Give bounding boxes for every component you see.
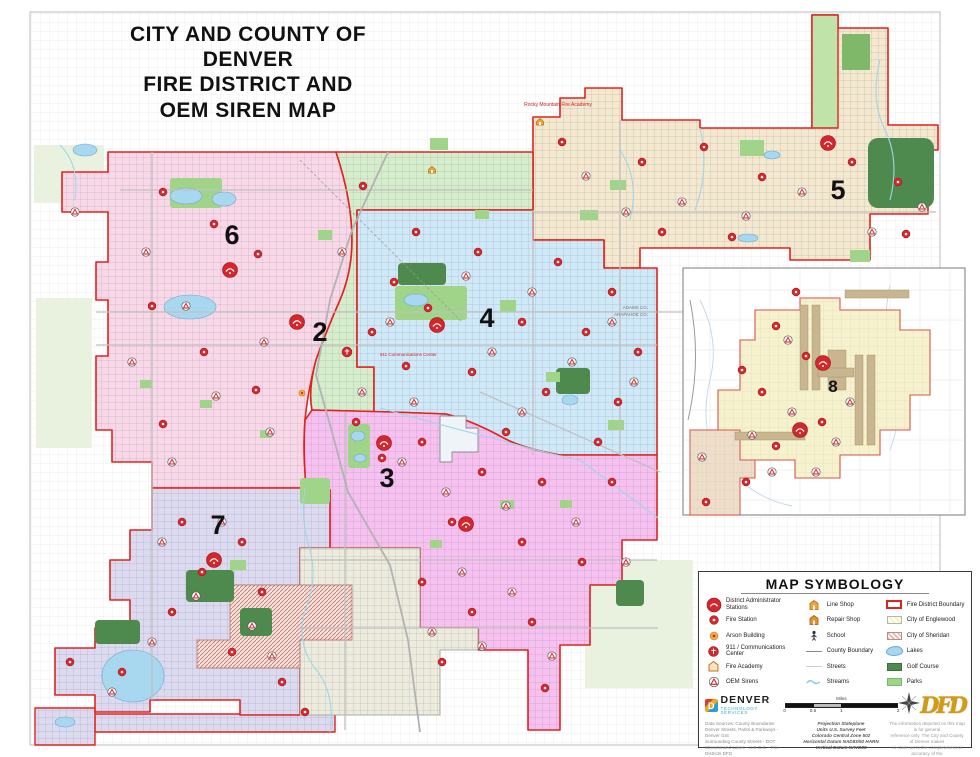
fire-station-icon — [168, 608, 176, 616]
denver-fire-department-logo: DFD — [920, 695, 965, 717]
oem-siren-icon — [622, 208, 630, 216]
oem-siren-icon — [630, 378, 638, 386]
oem-siren-icon — [582, 172, 590, 180]
denver-technology-services-logo: D DENVER TECHNOLOGY SERVICES — [705, 695, 785, 716]
legend-item: Lakes — [886, 644, 969, 660]
fire-station-icon — [518, 538, 526, 546]
fire-station-icon — [468, 608, 476, 616]
fire-station-icon — [228, 648, 236, 656]
legend-item: County Boundary — [806, 644, 884, 660]
oem-siren-icon — [518, 408, 526, 416]
fire-station-icon — [658, 228, 666, 236]
fire-academy-icon — [705, 660, 722, 673]
legend-footer: D DENVER TECHNOLOGY SERVICES Miles 0 0.5… — [705, 692, 965, 719]
legend-label: Parks — [907, 679, 922, 685]
fire-station-icon — [402, 362, 410, 370]
fire-station-icon — [700, 143, 708, 151]
map-title-line3: OEM SIREN MAP — [88, 98, 408, 123]
fire-station-icon — [238, 538, 246, 546]
fire-station-icon — [758, 173, 766, 181]
district-admin-station-icon — [816, 356, 831, 371]
compass-rose-icon — [898, 692, 920, 719]
map-title: CITY AND COUNTY OF DENVER FIRE DISTRICT … — [88, 22, 408, 123]
oem-siren-icon — [398, 458, 406, 466]
fire-station-icon — [278, 678, 286, 686]
fire-station-icon — [554, 258, 562, 266]
legend-label: School — [827, 633, 845, 639]
legend-label: OEM Sirens — [726, 679, 758, 685]
fire-station-icon — [758, 388, 766, 396]
fire-station-icon — [582, 328, 590, 336]
legend-label: Streams — [827, 679, 849, 685]
fire-station-icon — [254, 250, 262, 258]
oem-siren-icon — [71, 208, 79, 216]
oem-siren-icon — [548, 652, 556, 660]
scale-tick-labels: 0 0.5 1 2 — [785, 708, 899, 714]
fire-station-icon — [178, 518, 186, 526]
scale-unit-label: Miles — [836, 696, 847, 701]
oem-siren-icon — [798, 188, 806, 196]
legend-label: Fire Station — [726, 617, 757, 623]
oem-siren-icon — [846, 398, 854, 406]
oem-siren-icon — [868, 228, 876, 236]
data-sources-text: Data Sources: County Boundaries Denver S… — [705, 721, 793, 757]
oem-siren-icon — [260, 338, 268, 346]
legend-label: City of Englewood — [907, 617, 955, 623]
fire-station-icon — [66, 658, 74, 666]
streets-icon — [806, 666, 823, 667]
fire-station-icon — [301, 708, 309, 716]
lakes-swatch — [886, 646, 903, 656]
fire-station-icon — [614, 398, 622, 406]
scale-tick: 0.5 — [810, 708, 816, 713]
fire-station-icon — [258, 588, 266, 596]
oem-siren-icon — [462, 272, 470, 280]
oem-siren-icon — [608, 318, 616, 326]
legend-label: 911 / Communications Center — [726, 645, 804, 658]
oem-siren-icon — [248, 622, 256, 630]
fire-station-icon — [772, 442, 780, 450]
legend-column-1: District Administrator Stations Fire Sta… — [705, 597, 804, 690]
oem-siren-icon — [266, 428, 274, 436]
oem-siren-icon — [528, 288, 536, 296]
legend-label: Repair Shop — [827, 617, 860, 623]
oem-siren-icon — [488, 348, 496, 356]
legend-item: Arson Building — [705, 628, 804, 644]
district-5-label: 5 — [830, 175, 845, 205]
fire-station-icon — [792, 288, 800, 296]
legend-column-2: Line Shop Repair Shop School County Boun… — [806, 597, 884, 690]
legend-item: City of Sheridan — [886, 628, 969, 644]
legend-item: Line Shop — [806, 597, 884, 613]
comm-center-label: 911 Communications Center — [380, 352, 437, 357]
district-7-label: 7 — [210, 510, 225, 540]
oem-siren-icon — [622, 558, 630, 566]
legend-label: Streets — [827, 664, 846, 670]
oem-siren-icon — [386, 318, 394, 326]
legend-label: Fire District Boundary — [907, 602, 965, 608]
oem-siren-icon — [168, 458, 176, 466]
fire-station-icon — [448, 518, 456, 526]
district-4-label: 4 — [479, 303, 494, 333]
fire-station-icon — [390, 278, 398, 286]
legend-grid: District Administrator Stations Fire Sta… — [705, 597, 965, 690]
district-admin-station-icon — [377, 436, 392, 451]
denver-d-mark-icon: D — [705, 699, 718, 712]
denver-logo-title: DENVER — [721, 695, 785, 706]
map-sheet: ADAMS CO. ARAPAHOE CO. Rocky Mountain Fi… — [0, 0, 980, 757]
district-admin-station-icon — [793, 423, 808, 438]
golf-course-swatch — [886, 663, 903, 671]
fire-station-icon — [702, 498, 710, 506]
disclaimer-text: The information depicted on this map is … — [889, 721, 965, 757]
legend-item: City of Englewood — [886, 613, 969, 629]
legend-item: Fire Station — [705, 613, 804, 629]
fire-station-icon — [818, 418, 826, 426]
legend-label: Line Shop — [827, 602, 854, 608]
fire-station-icon — [418, 578, 426, 586]
legend-label: City of Sheridan — [907, 633, 950, 639]
oem-siren-icon — [358, 388, 366, 396]
fire-station-icon — [474, 248, 482, 256]
legend-item: School — [806, 628, 884, 644]
fire-station-icon — [538, 478, 546, 486]
fire-station-icon — [424, 304, 432, 312]
map-symbology-legend: MAP SYMBOLOGY District Administrator Sta… — [698, 571, 972, 748]
oem-siren-icon — [182, 302, 190, 310]
district-2-label: 2 — [312, 317, 327, 347]
parks-swatch — [886, 678, 903, 686]
county-label-south: ARAPAHOE CO. — [614, 312, 648, 317]
district-7-strip — [95, 714, 335, 732]
oem-siren-icon — [768, 468, 776, 476]
scale-tick: 0 — [783, 708, 786, 713]
911-communications-icon — [705, 645, 722, 658]
fire-station-icon — [742, 478, 750, 486]
fire-station-icon — [772, 322, 780, 330]
fire-station-icon — [608, 288, 616, 296]
oem-siren-icon — [748, 431, 756, 439]
county-label-north: ADAMS CO. — [623, 305, 648, 310]
oem-siren-icon — [508, 588, 516, 596]
fire-station-icon — [200, 348, 208, 356]
fire-station-icon — [594, 438, 602, 446]
fire-station-icon — [368, 328, 376, 336]
fire-station-icon — [359, 182, 367, 190]
denver-logo-subtitle: TECHNOLOGY SERVICES — [721, 707, 785, 716]
fire-station-icon — [159, 188, 167, 196]
oem-siren-icon — [442, 488, 450, 496]
streams-icon — [806, 678, 823, 686]
fire-station-icon — [418, 438, 426, 446]
fire-station-icon — [738, 366, 746, 374]
fire-station-icon — [894, 178, 902, 186]
district-3-label: 3 — [379, 463, 394, 493]
oem-siren-icon — [572, 518, 580, 526]
oem-siren-icon — [788, 408, 796, 416]
legend-credits: Data Sources: County Boundaries Denver S… — [705, 721, 965, 757]
fire-station-icon — [541, 684, 549, 692]
oem-siren-icon — [128, 358, 136, 366]
legend-item: Fire District Boundary — [886, 597, 969, 613]
arson-building-icon — [705, 630, 722, 642]
oem-siren-icon — [832, 438, 840, 446]
legend-item: Fire Academy — [705, 659, 804, 675]
fire-station-icon — [705, 614, 722, 626]
legend-label: Arson Building — [726, 633, 765, 639]
oem-siren-icon — [148, 638, 156, 646]
fire-station-icon — [159, 420, 167, 428]
fire-station-icon — [638, 158, 646, 166]
scale-tick: 2 — [897, 708, 900, 713]
district-admin-station-icon — [705, 597, 722, 613]
district-admin-station-icon — [821, 136, 836, 151]
oem-siren-icon — [410, 398, 418, 406]
district-admin-station-icon — [290, 315, 305, 330]
legend-item: Streets — [806, 659, 884, 675]
fire-station-icon — [728, 233, 736, 241]
legend-item: Golf Course — [886, 659, 969, 675]
oem-siren-icon — [502, 502, 510, 510]
oem-siren-icon — [142, 248, 150, 256]
legend-item: 911 / Communications Center — [705, 644, 804, 660]
oem-siren-icon — [458, 568, 466, 576]
legend-item: Streams — [806, 675, 884, 691]
fire-station-icon — [558, 138, 566, 146]
repair-shop-icon — [806, 614, 823, 626]
fire-station-icon — [802, 352, 810, 360]
fire-station-icon — [118, 668, 126, 676]
oem-siren-icon — [918, 203, 926, 211]
oem-siren-icon — [784, 336, 792, 344]
legend-label: Golf Course — [907, 664, 939, 670]
fire-station-icon — [148, 302, 156, 310]
oem-siren-icon — [705, 676, 722, 688]
oem-siren-icon — [338, 248, 346, 256]
oem-siren-icon — [158, 538, 166, 546]
district-admin-station-icon — [459, 517, 474, 532]
fire-station-icon — [198, 568, 206, 576]
oem-siren-icon — [192, 592, 200, 600]
fire-station-icon — [608, 478, 616, 486]
oem-siren-icon — [212, 392, 220, 400]
fire-station-icon — [210, 220, 218, 228]
county-boundary-icon — [806, 651, 823, 652]
arson-building-icon — [299, 390, 305, 396]
911-communications-icon — [342, 347, 352, 357]
district-8-label: 8 — [828, 377, 837, 396]
oem-siren-icon — [428, 628, 436, 636]
fire-station-icon — [252, 386, 260, 394]
oem-siren-icon — [698, 453, 706, 461]
district-6-label: 6 — [224, 220, 239, 250]
projection-info-text: Projection Stateplane Units U.S. Survey … — [795, 721, 887, 757]
fire-station-icon — [578, 558, 586, 566]
oem-siren-icon — [108, 688, 116, 696]
fire-station-icon — [438, 658, 446, 666]
fire-station-icon — [502, 428, 510, 436]
fire-station-icon — [468, 368, 476, 376]
legend-item: Parks — [886, 675, 969, 691]
legend-label: Lakes — [907, 648, 923, 654]
fire-station-icon — [634, 348, 642, 356]
legend-label: Fire Academy — [726, 664, 763, 670]
oem-siren-icon — [742, 212, 750, 220]
legend-item: OEM Sirens — [705, 675, 804, 691]
fire-station-icon — [902, 230, 910, 238]
fire-station-icon — [352, 418, 360, 426]
school-icon — [806, 630, 823, 641]
fire-station-icon — [378, 454, 386, 462]
legend-column-3: Fire District Boundary City of Englewood… — [886, 597, 969, 690]
map-title-line2: FIRE DISTRICT AND — [88, 72, 408, 97]
legend-title-rule — [741, 593, 928, 594]
scale-tick: 1 — [840, 708, 843, 713]
englewood-swatch — [886, 616, 903, 624]
fire-station-icon — [412, 228, 420, 236]
legend-label: District Administrator Stations — [726, 598, 804, 611]
district-admin-station-icon — [207, 553, 222, 568]
fire-district-boundary-swatch — [886, 600, 903, 609]
fire-station-icon — [542, 388, 550, 396]
inset-map — [683, 268, 965, 515]
oem-siren-icon — [268, 652, 276, 660]
district-admin-station-icon — [430, 318, 445, 333]
district-admin-station-icon — [223, 263, 238, 278]
fire-station-icon — [478, 468, 486, 476]
oem-siren-icon — [568, 358, 576, 366]
legend-title: MAP SYMBOLOGY — [705, 576, 965, 592]
fire-station-icon — [518, 318, 526, 326]
oem-siren-icon — [812, 468, 820, 476]
scale-bar: Miles 0 0.5 1 2 — [785, 703, 899, 714]
map-title-line1: CITY AND COUNTY OF DENVER — [88, 22, 408, 72]
sheridan-swatch — [886, 632, 903, 640]
fire-station-icon — [848, 158, 856, 166]
oem-siren-icon — [678, 198, 686, 206]
legend-item: District Administrator Stations — [705, 597, 804, 613]
oem-siren-icon — [478, 642, 486, 650]
legend-label: County Boundary — [827, 648, 873, 654]
fire-station-icon — [528, 618, 536, 626]
line-shop-icon — [806, 599, 823, 611]
fire-academy-label: Rocky Mountain Fire Academy — [524, 102, 592, 108]
legend-item: Repair Shop — [806, 613, 884, 629]
